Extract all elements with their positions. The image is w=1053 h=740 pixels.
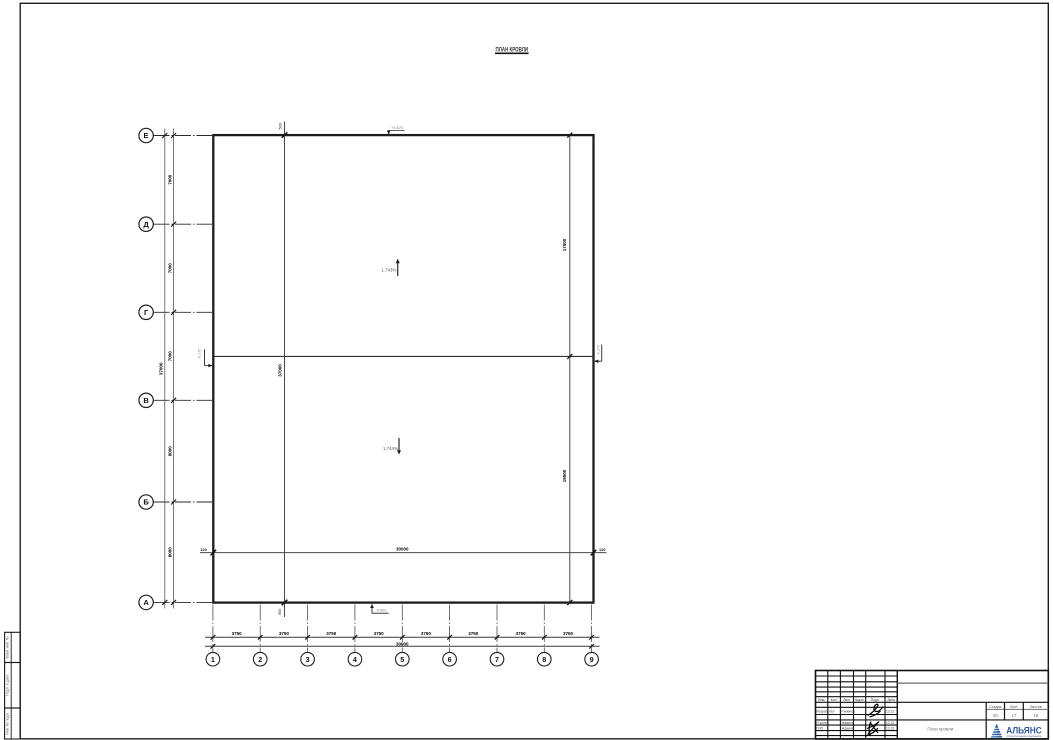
svg-text:1: 1 [211, 655, 215, 664]
svg-text:3750: 3750 [279, 631, 290, 636]
svg-text:20: 20 [993, 713, 998, 718]
svg-text:-0.170: -0.170 [597, 345, 601, 355]
svg-text:№док.: №док. [855, 698, 865, 702]
svg-text:Дата: Дата [887, 698, 895, 702]
svg-text:8000: 8000 [167, 446, 172, 457]
svg-text:3750: 3750 [516, 631, 527, 636]
svg-text:30000: 30000 [396, 547, 409, 552]
svg-text:+4.670: +4.670 [391, 125, 404, 130]
svg-text:Разработал: Разработал [817, 710, 835, 714]
svg-text:Инв. № подл.: Инв. № подл. [6, 712, 10, 734]
svg-text:17500: 17500 [562, 238, 567, 251]
svg-text:6: 6 [448, 655, 452, 664]
svg-text:Подп.: Подп. [871, 698, 880, 702]
svg-text:Жданов: Жданов [842, 721, 854, 725]
svg-text:3750: 3750 [326, 631, 337, 636]
svg-text:А: А [143, 598, 149, 607]
svg-text:2: 2 [258, 655, 262, 664]
svg-text:Лист: Лист [1010, 705, 1018, 709]
svg-text:4: 4 [353, 655, 357, 664]
svg-text:3750: 3750 [563, 631, 574, 636]
svg-text:18: 18 [1033, 713, 1038, 718]
svg-text:7000: 7000 [167, 263, 172, 274]
svg-text:Кол.: Кол. [831, 698, 838, 702]
svg-text:120: 120 [200, 547, 207, 552]
svg-text:12.12: 12.12 [886, 726, 894, 730]
svg-text:12.12: 12.12 [886, 710, 894, 714]
svg-text:30000: 30000 [396, 641, 409, 646]
svg-text:Лист: Лист [843, 698, 851, 702]
svg-text:Рыжиков: Рыжиков [842, 710, 856, 714]
svg-text:3750: 3750 [468, 631, 479, 636]
svg-text:12.12: 12.12 [886, 721, 894, 725]
svg-text:19500: 19500 [562, 469, 567, 482]
svg-text:В: В [143, 396, 149, 405]
svg-text:Д: Д [143, 220, 149, 229]
svg-text:120: 120 [599, 547, 606, 552]
svg-text:3750: 3750 [232, 631, 243, 636]
svg-text:5: 5 [400, 655, 404, 664]
svg-text:1.744%: 1.744% [383, 446, 398, 451]
svg-text:8: 8 [542, 655, 546, 664]
svg-text:Изм.: Изм. [818, 698, 825, 702]
svg-text:Б: Б [143, 498, 149, 507]
svg-text:Жданов: Жданов [842, 726, 854, 730]
svg-text:1.743%: 1.743% [381, 267, 396, 272]
svg-text:37000: 37000 [159, 362, 164, 375]
svg-text:Листов: Листов [1030, 705, 1042, 709]
svg-text:-0.170: -0.170 [198, 349, 202, 359]
svg-text:37000: 37000 [277, 364, 282, 377]
svg-text:3750: 3750 [374, 631, 385, 636]
svg-text:строительная компания: строительная компания [1007, 735, 1043, 738]
svg-text:Н.контр.: Н.контр. [817, 721, 830, 725]
svg-text:7: 7 [495, 655, 499, 664]
svg-text:17: 17 [1011, 713, 1016, 718]
svg-text:9: 9 [590, 655, 594, 664]
svg-text:Взам. инв. №: Взам. инв. № [6, 636, 10, 658]
svg-text:8000: 8000 [167, 547, 172, 558]
svg-text:-0.600: -0.600 [375, 608, 387, 613]
svg-text:Подп. и дата: Подп. и дата [6, 675, 10, 696]
svg-text:500: 500 [277, 122, 282, 129]
svg-text:План кровли: План кровли [927, 727, 953, 732]
svg-text:Е: Е [144, 131, 149, 140]
svg-text:7000: 7000 [167, 351, 172, 362]
svg-text:Стадия: Стадия [989, 705, 1001, 709]
svg-text:500: 500 [277, 608, 282, 615]
svg-text:3750: 3750 [421, 631, 432, 636]
svg-text:Г: Г [144, 308, 149, 317]
svg-text:3: 3 [306, 655, 310, 664]
svg-text:ГИП: ГИП [817, 726, 824, 730]
svg-text:7000: 7000 [167, 174, 172, 185]
